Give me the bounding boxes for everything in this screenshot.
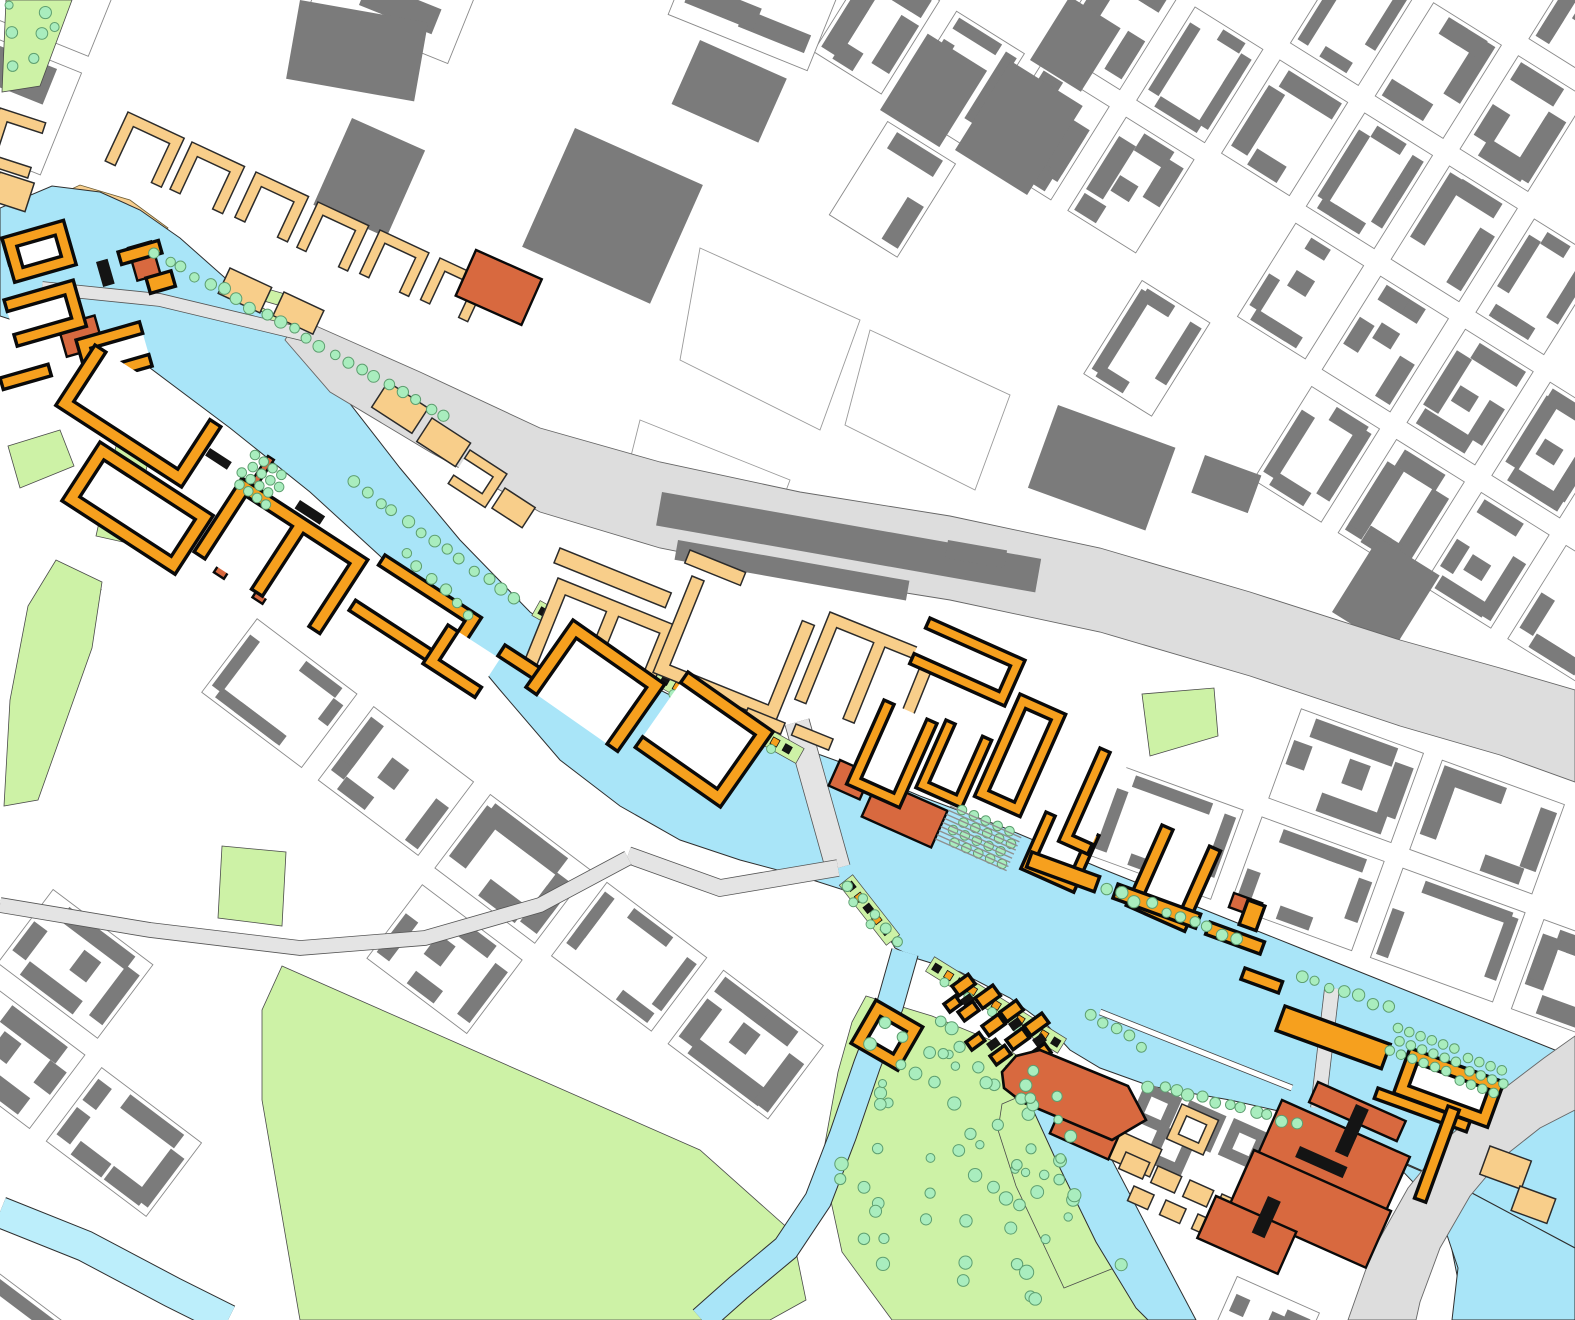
city-map	[0, 0, 1575, 1320]
park-square	[218, 846, 286, 926]
map-viewport[interactable]	[0, 0, 1575, 1320]
